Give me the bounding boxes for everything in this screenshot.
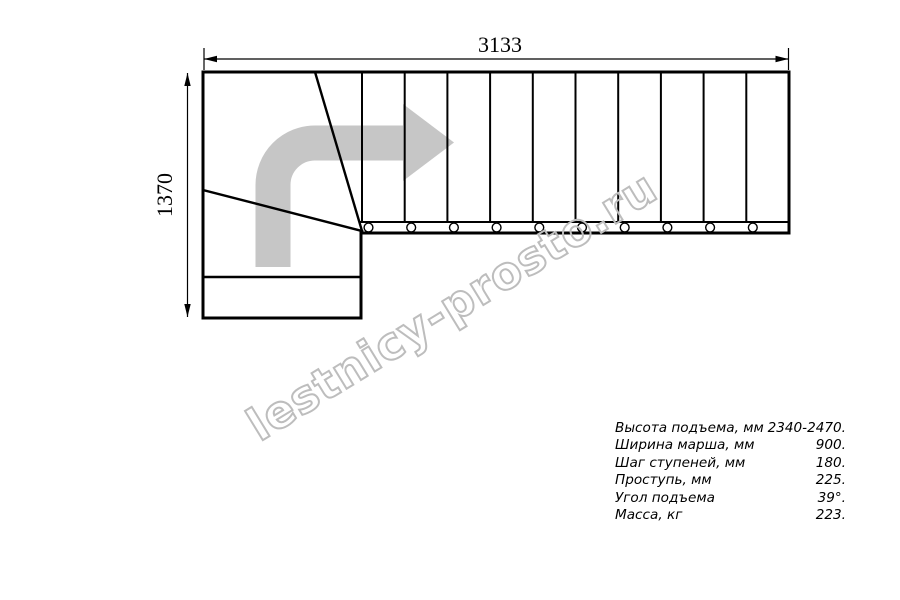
spec-value: 2340-2470.: [768, 420, 846, 437]
spec-label: Масса, кг: [615, 507, 682, 524]
mount-hole: [364, 223, 373, 232]
dimension-width: 3133: [204, 32, 789, 70]
spec-table: Высота подъема, мм 2340-2470. Ширина мар…: [615, 420, 846, 524]
dim-arrow-down-icon: [184, 304, 190, 317]
spec-row: Ширина марша, мм 900.: [615, 437, 846, 454]
dim-arrow-left-icon: [204, 56, 217, 62]
spec-value: 180.: [816, 455, 846, 472]
spec-label: Проступь, мм: [615, 472, 712, 489]
dim-arrow-up-icon: [184, 73, 190, 86]
dim-height-value: 1370: [152, 173, 177, 217]
dim-arrow-right-icon: [776, 56, 789, 62]
mount-hole: [663, 223, 672, 232]
spec-label: Угол подъема: [615, 490, 715, 507]
direction-arrow-head: [403, 104, 454, 181]
spec-row: Высота подъема, мм 2340-2470.: [615, 420, 846, 437]
mount-hole: [535, 223, 544, 232]
spec-row: Шаг ступеней, мм 180.: [615, 455, 846, 472]
spec-value: 223.: [816, 507, 846, 524]
spec-value: 225.: [816, 472, 846, 489]
direction-arrow-body: [273, 143, 403, 267]
stair-direction-arrow-icon: [273, 104, 454, 267]
mount-hole: [407, 223, 416, 232]
spec-value: 39°.: [818, 490, 846, 507]
stair-outline: [203, 72, 789, 318]
spec-row: Масса, кг 223.: [615, 507, 846, 524]
mount-hole: [748, 223, 757, 232]
spec-value: 900.: [816, 437, 846, 454]
mount-hole: [492, 223, 501, 232]
mount-hole: [578, 223, 587, 232]
spec-row: Угол подъема 39°.: [615, 490, 846, 507]
dim-width-value: 3133: [478, 32, 522, 57]
mount-hole-circles: [364, 223, 757, 232]
spec-label: Высота подъема, мм: [615, 420, 764, 437]
mount-hole: [706, 223, 715, 232]
dimension-height: 1370: [152, 73, 191, 317]
mount-hole: [450, 223, 459, 232]
spec-label: Шаг ступеней, мм: [615, 455, 745, 472]
mount-hole: [620, 223, 629, 232]
spec-label: Ширина марша, мм: [615, 437, 755, 454]
spec-row: Проступь, мм 225.: [615, 472, 846, 489]
